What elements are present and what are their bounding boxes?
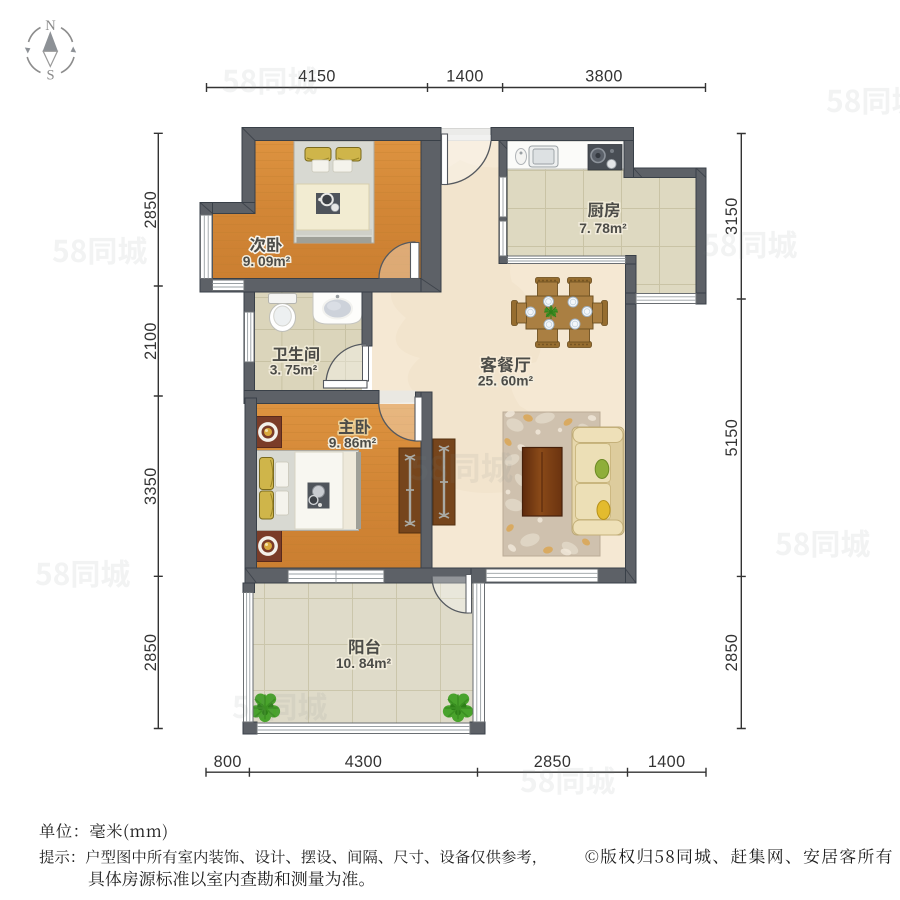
- svg-text:2850: 2850: [142, 634, 160, 672]
- svg-text:2850: 2850: [723, 634, 741, 672]
- svg-text:25. 60m²: 25. 60m²: [478, 374, 534, 389]
- svg-text:3150: 3150: [723, 197, 741, 235]
- svg-text:2850: 2850: [142, 191, 160, 229]
- svg-text:4300: 4300: [345, 753, 383, 771]
- svg-text:800: 800: [214, 753, 242, 771]
- svg-text:5150: 5150: [723, 419, 741, 457]
- svg-text:10. 84m²: 10. 84m²: [336, 656, 392, 671]
- svg-text:9. 09m²: 9. 09m²: [243, 254, 291, 269]
- svg-text:7. 78m²: 7. 78m²: [579, 221, 627, 236]
- svg-text:S: S: [46, 68, 54, 84]
- svg-text:N: N: [45, 18, 56, 34]
- svg-text:3. 75m²: 3. 75m²: [270, 363, 318, 378]
- svg-text:9. 86m²: 9. 86m²: [329, 436, 377, 451]
- svg-text:2100: 2100: [142, 322, 160, 360]
- svg-text:1400: 1400: [648, 753, 686, 771]
- svg-text:3800: 3800: [585, 68, 623, 86]
- svg-text:1400: 1400: [446, 68, 484, 86]
- svg-text:3350: 3350: [142, 467, 160, 505]
